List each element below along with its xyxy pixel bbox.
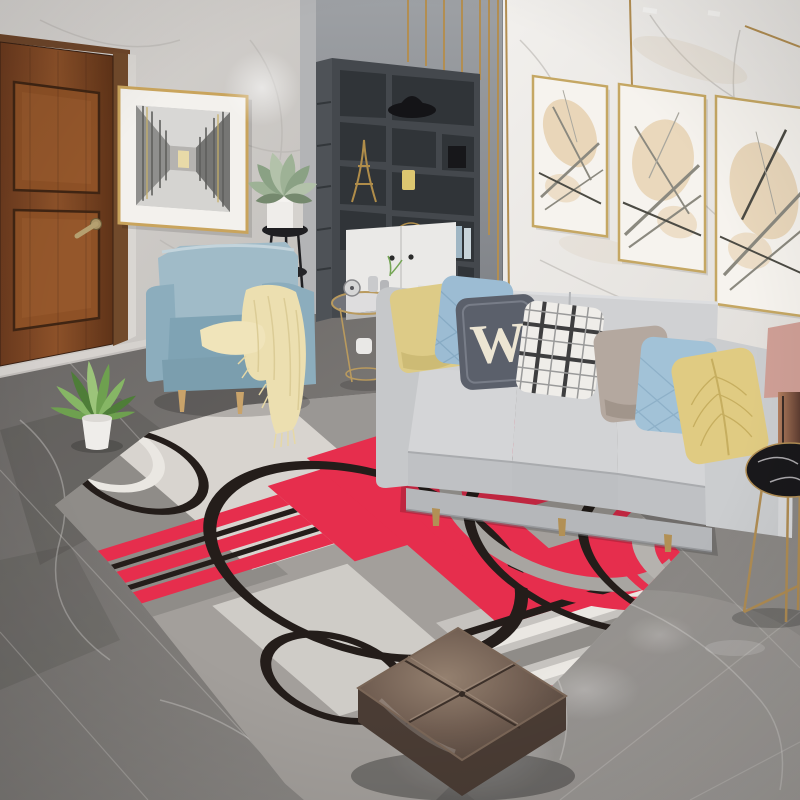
vignette [0,0,800,800]
scene-canvas: W [0,0,800,800]
living-room-photo: W [0,0,800,800]
